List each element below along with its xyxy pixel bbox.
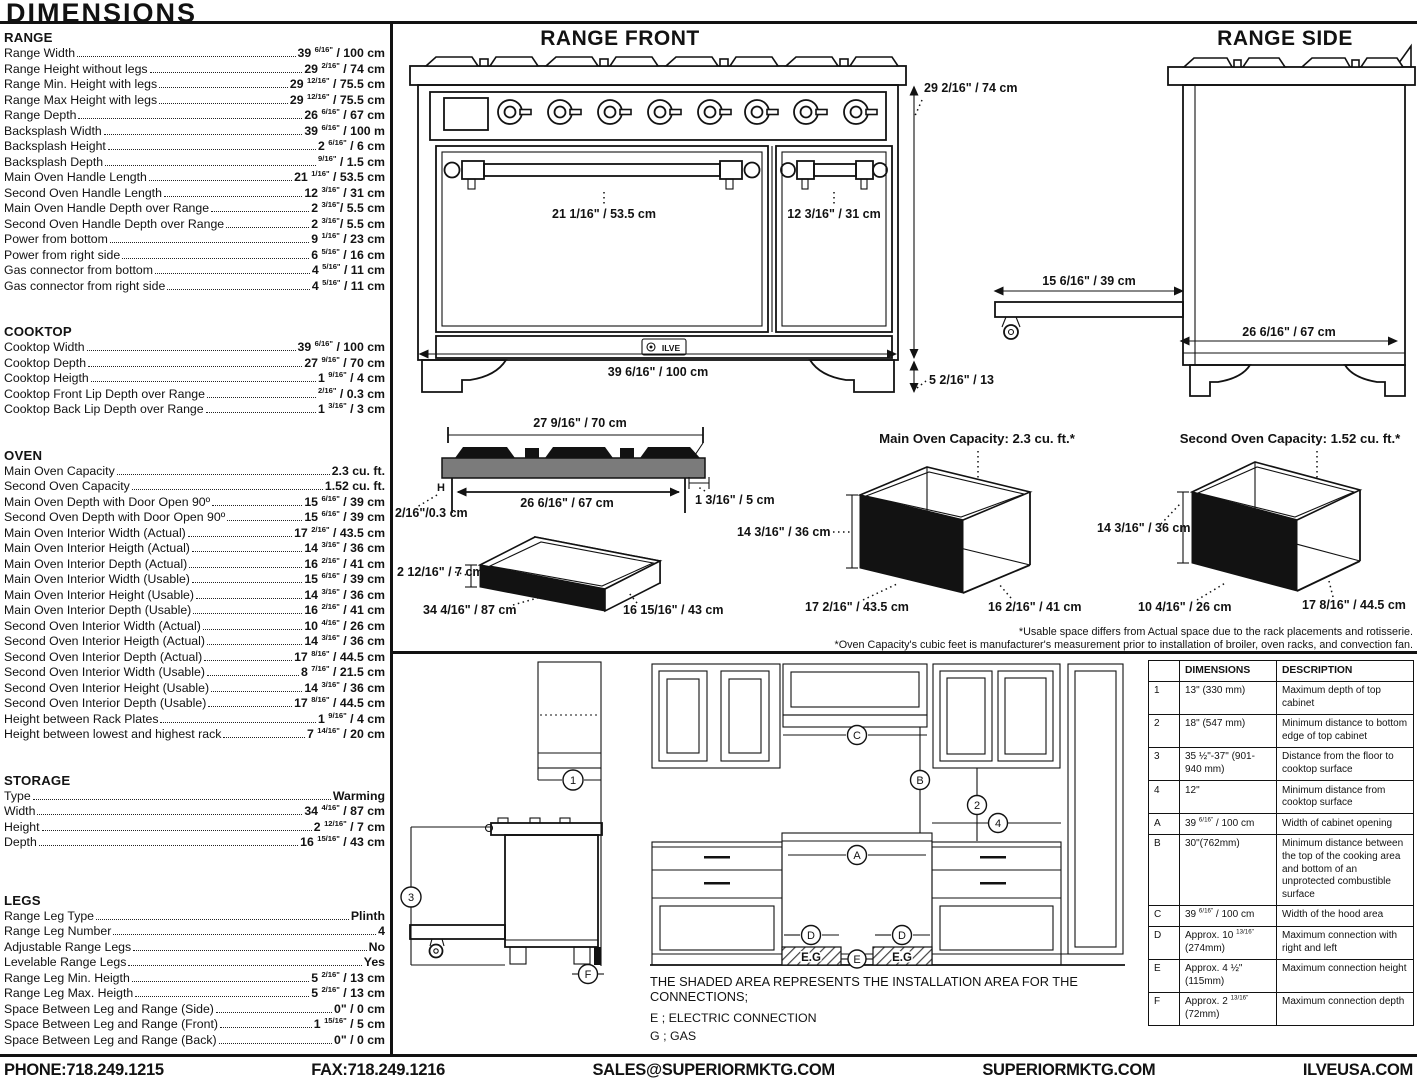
main-oven-width-dim: 17 2/16" / 43.5 cm xyxy=(805,600,909,614)
spec-section-storage: STORAGETypeWarmingWidth34 4/16" / 87 cmH… xyxy=(4,773,385,851)
base-right-cabinet xyxy=(932,842,1061,965)
spec-row: Range Leg Min. Heigth5 2/16" / 13 cm xyxy=(4,971,385,987)
footer-website2: ILVEUSA.COM xyxy=(1303,1061,1413,1080)
spec-row: Range Min. Height with legs29 12/16" / 7… xyxy=(4,77,385,93)
spec-value: Yes xyxy=(364,955,385,971)
shaded-label: E.G xyxy=(801,952,821,964)
spec-row: Main Oven Capacity2.3 cu. ft. xyxy=(4,464,385,480)
cooktop-side xyxy=(491,823,602,835)
spec-label: Second Oven Depth with Door Open 90º xyxy=(4,510,225,526)
spec-row: Backsplash Depth9/16" / 1.5 cm xyxy=(4,155,385,171)
spec-row: Range Leg Number4 xyxy=(4,924,385,940)
spec-value: 15 6/16" / 39 cm xyxy=(304,495,385,511)
marker-F: F xyxy=(579,965,598,984)
spec-label: Power from right side xyxy=(4,248,120,264)
spec-row: Range Depth26 6/16" / 67 cm xyxy=(4,108,385,124)
spec-value: Plinth xyxy=(351,909,385,925)
spec-value: 17 8/16" / 44.5 cm xyxy=(294,696,385,712)
dotted-leader xyxy=(192,551,302,552)
base-left-cabinet xyxy=(652,842,782,965)
table-dim: Approx. 2 13/16" (72mm) xyxy=(1180,992,1277,1025)
spec-label: Space Between Leg and Range (Side) xyxy=(4,1002,214,1018)
dotted-leader xyxy=(39,845,298,846)
right-leg xyxy=(810,360,894,392)
knob-icon xyxy=(698,100,731,124)
spec-value: 4 5/16" / 11 cm xyxy=(312,263,385,279)
dotted-leader xyxy=(196,598,302,599)
dotted-leader xyxy=(189,567,302,568)
spec-section-heading: RANGE xyxy=(4,30,385,46)
upper-right-cabinet xyxy=(933,664,1060,768)
install-table-row: FApprox. 2 13/16" (72mm)Maximum connecti… xyxy=(1149,992,1414,1025)
spec-label: Main Oven Capacity xyxy=(4,464,115,480)
table-dim: 39 6/16" / 100 cm xyxy=(1180,905,1277,926)
table-desc: Maximum connection with right and left xyxy=(1277,926,1414,959)
second-oven-diagram: Second Oven Capacity: 1.52 cu. ft.* 14 3… xyxy=(1095,428,1417,620)
spec-label: Second Oven Handle Depth over Range xyxy=(4,217,224,233)
range-width-dim: 39 6/16" / 100 cm xyxy=(608,365,708,379)
marker-B: B xyxy=(911,771,930,790)
cooktop-band xyxy=(410,57,906,85)
spec-value: 1 3/16" / 3 cm xyxy=(318,402,385,418)
table-desc: Maximum depth of top cabinet xyxy=(1277,681,1414,714)
dotted-leader xyxy=(207,644,302,645)
spec-section-heading: STORAGE xyxy=(4,773,385,789)
spec-value: 17 2/16" / 43.5 cm xyxy=(294,526,385,542)
spec-row: Width34 4/16" / 87 cm xyxy=(4,804,385,820)
table-key: 1 xyxy=(1149,681,1180,714)
spec-row: Space Between Leg and Range (Side)0" / 0… xyxy=(4,1002,385,1018)
install-table-body: 113" (330 mm)Maximum depth of top cabine… xyxy=(1149,681,1414,1025)
spec-row: Height2 12/16" / 7 cm xyxy=(4,820,385,836)
spec-label: Range Leg Max. Heigth xyxy=(4,986,133,1002)
spec-row: Second Oven Capacity1.52 cu. ft. xyxy=(4,479,385,495)
drawer-height-dim: 2 12/16" / 7 cm xyxy=(397,565,484,579)
spec-section-legs: LEGSRange Leg TypePlinthRange Leg Number… xyxy=(4,893,385,1049)
dotted-leader xyxy=(204,660,292,661)
marker-2: 2 xyxy=(968,796,987,815)
front-lip-dim: 2/16"/0.3 cm xyxy=(395,506,468,520)
cooktop-inner-dim: 26 6/16" / 67 cm xyxy=(520,496,614,510)
dotted-leader xyxy=(113,934,376,935)
spec-label: Range Depth xyxy=(4,108,76,124)
knob-icon xyxy=(794,100,827,124)
table-dim: Approx. 10 13/16" (274mm) xyxy=(1180,926,1277,959)
install-table-row: 412"Minimum distance from cooktop surfac… xyxy=(1149,781,1414,814)
range-front-diagram: 21 1/16" / 53.5 cm 12 3/16" / 31 cm ILVE… xyxy=(408,52,1018,404)
spec-value: 9/16" / 1.5 cm xyxy=(318,155,385,171)
spec-label: Range Min. Height with legs xyxy=(4,77,157,93)
caster-icon xyxy=(430,945,443,958)
main-oven-title: Main Oven Capacity: 2.3 cu. ft.* xyxy=(879,431,1076,446)
spec-row: Power from bottom9 1/16" / 23 cm xyxy=(4,232,385,248)
spec-row: Range Height without legs29 2/16" / 74 c… xyxy=(4,62,385,78)
install-note-gas: G ; GAS xyxy=(650,1029,1130,1043)
spec-value: 17 8/16" / 44.5 cm xyxy=(294,650,385,666)
spec-value: 6 5/16" / 16 cm xyxy=(311,248,385,264)
spec-value: 1 9/16" / 4 cm xyxy=(318,712,385,728)
spec-value: 26 6/16" / 67 cm xyxy=(304,108,385,124)
footer: PHONE:718.249.1215 FAX:718.249.1216 SALE… xyxy=(0,1054,1417,1080)
second-oven-depth-dim: 17 8/16" / 44.5 cm xyxy=(1302,598,1406,612)
second-oven-title: Second Oven Capacity: 1.52 cu. ft.* xyxy=(1180,431,1401,446)
table-header-description: DESCRIPTION xyxy=(1277,661,1414,682)
spec-label: Range Leg Number xyxy=(4,924,111,940)
main-oven-depth-dim: 16 2/16" / 41 cm xyxy=(988,600,1082,614)
svg-text:A: A xyxy=(853,850,861,862)
dotted-leader xyxy=(164,196,302,197)
spec-value: No xyxy=(369,940,385,956)
install-table-row: 335 ½"-37" (901-940 mm)Distance from the… xyxy=(1149,747,1414,780)
table-dim: 35 ½"-37" (901-940 mm) xyxy=(1180,747,1277,780)
range-body xyxy=(418,85,898,360)
spec-value: 12 3/16" / 31 cm xyxy=(304,186,385,202)
install-table-row: 218" (547 mm)Minimum distance to bottom … xyxy=(1149,714,1414,747)
spec-label: Second Oven Handle Length xyxy=(4,186,162,202)
spec-row: Second Oven Handle Depth over Range2 3/1… xyxy=(4,217,385,233)
spec-label: Main Oven Depth with Door Open 90º xyxy=(4,495,210,511)
range-profile-body xyxy=(505,835,598,947)
svg-text:1: 1 xyxy=(570,775,576,787)
marker-C: C xyxy=(848,726,867,745)
spec-row: Levelable Range LegsYes xyxy=(4,955,385,971)
spec-label: Depth xyxy=(4,835,37,851)
spec-label: Main Oven Handle Depth over Range xyxy=(4,201,209,217)
table-desc: Minimum distance between the top of the … xyxy=(1277,834,1414,905)
install-notes: THE SHADED AREA REPRESENTS THE INSTALLAT… xyxy=(650,974,1130,1047)
spec-value: 2/16" / 0.3 cm xyxy=(318,387,385,403)
spec-section-heading: OVEN xyxy=(4,448,385,464)
spec-row: Range Leg Max. Heigth5 2/16" / 13 cm xyxy=(4,986,385,1002)
spec-row: Cooktop Heigth1 9/16" / 4 cm xyxy=(4,371,385,387)
spec-row: Adjustable Range LegsNo xyxy=(4,940,385,956)
spec-row: Backsplash Height2 6/16" / 6 cm xyxy=(4,139,385,155)
spec-value: 0" / 0 cm xyxy=(334,1033,385,1049)
table-key: 4 xyxy=(1149,781,1180,814)
dotted-leader xyxy=(105,165,316,166)
spec-value: 5 2/16" / 13 cm xyxy=(311,971,385,987)
range-front-title: RANGE FRONT xyxy=(400,27,840,51)
dotted-leader xyxy=(122,258,309,259)
page-title: DIMENSIONS xyxy=(6,0,197,29)
knob-icon xyxy=(548,100,581,124)
open-door-side xyxy=(410,925,505,939)
spec-value: 1 15/16" / 5 cm xyxy=(314,1017,385,1033)
table-dim: Approx. 4 ½" (115mm) xyxy=(1180,959,1277,992)
second-oven-width-dim: 10 4/16" / 26 cm xyxy=(1138,600,1232,614)
footer-fax: FAX:718.249.1216 xyxy=(311,1061,445,1080)
connection-zone xyxy=(594,947,601,965)
spec-sections: RANGERange Width39 6/16" / 100 cmRange H… xyxy=(4,30,385,1078)
footnotes: *Usable space differs from Actual space … xyxy=(700,626,1413,652)
spec-row: Range Leg TypePlinth xyxy=(4,909,385,925)
spec-row: Space Between Leg and Range (Front)1 15/… xyxy=(4,1017,385,1033)
spec-value: 15 6/16" / 39 cm xyxy=(304,572,385,588)
spec-section-cooktop: COOKTOPCooktop Width39 6/16" / 100 cmCoo… xyxy=(4,324,385,418)
spec-value: 14 3/16" / 36 cm xyxy=(304,588,385,604)
install-note-electric: E ; ELECTRIC CONNECTION xyxy=(650,1011,1130,1025)
table-desc: Distance from the floor to cooktop surfa… xyxy=(1277,747,1414,780)
dotted-leader xyxy=(77,56,295,57)
table-key: A xyxy=(1149,814,1180,835)
main-oven-door xyxy=(436,146,768,332)
spec-label: Second Oven Interior Width (Usable) xyxy=(4,665,205,681)
spec-value: 14 3/16" / 36 cm xyxy=(304,541,385,557)
spec-label: Main Oven Interior Width (Usable) xyxy=(4,572,190,588)
vertical-divider xyxy=(390,21,393,1055)
footer-email: SALES@SUPERIORMKTG.COM xyxy=(592,1061,834,1080)
spec-section-range: RANGERange Width39 6/16" / 100 cmRange H… xyxy=(4,30,385,294)
spec-row: Second Oven Interior Heigth (Actual)14 3… xyxy=(4,634,385,650)
spec-label: Height between Rack Plates xyxy=(4,712,158,728)
h-marker: H xyxy=(437,482,445,494)
install-table-row: A39 6/16" / 100 cmWidth of cabinet openi… xyxy=(1149,814,1414,835)
svg-text:2: 2 xyxy=(974,800,980,812)
dotted-leader xyxy=(110,242,309,243)
dotted-leader xyxy=(37,814,302,815)
spec-value: 21 1/16" / 53.5 cm xyxy=(294,170,385,186)
spec-label: Second Oven Interior Depth (Usable) xyxy=(4,696,206,712)
storage-drawer-diagram: 2 12/16" / 7 cm 34 4/16" / 87 cm 16 15/1… xyxy=(395,525,775,630)
spec-row: Second Oven Interior Depth (Usable)17 8/… xyxy=(4,696,385,712)
spec-label: Cooktop Width xyxy=(4,340,85,356)
dotted-leader xyxy=(132,489,323,490)
dotted-leader xyxy=(220,1027,312,1028)
table-header-blank xyxy=(1149,661,1180,682)
dotted-leader xyxy=(87,350,296,351)
spec-row: Range Max Height with legs29 12/16" / 75… xyxy=(4,93,385,109)
depth-dim: 26 6/16" / 67 cm xyxy=(1242,325,1336,339)
spec-label: Cooktop Heigth xyxy=(4,371,89,387)
knob-icon xyxy=(598,100,631,124)
spec-value: 16 15/16" / 43 cm xyxy=(300,835,385,851)
spec-label: Main Oven Interior Depth (Usable) xyxy=(4,603,191,619)
footnote-line: *Oven Capacity's cubic feet is manufactu… xyxy=(700,639,1413,652)
spec-label: Backsplash Width xyxy=(4,124,102,140)
spec-row: Main Oven Handle Length21 1/16" / 53.5 c… xyxy=(4,170,385,186)
dotted-leader xyxy=(192,582,302,583)
dotted-leader xyxy=(78,118,302,119)
spec-row: Main Oven Interior Width (Actual)17 2/16… xyxy=(4,526,385,542)
spec-row: Cooktop Width39 6/16" / 100 cm xyxy=(4,340,385,356)
knob-icon xyxy=(745,100,778,124)
spec-value: 16 2/16" / 41 cm xyxy=(304,603,385,619)
spec-value: 7 14/16" / 20 cm xyxy=(307,727,385,743)
left-leg xyxy=(422,360,506,392)
knob-icon xyxy=(844,100,877,124)
marker-E: E xyxy=(848,950,866,968)
knob-icon xyxy=(648,100,681,124)
spec-label: Range Max Height with legs xyxy=(4,93,157,109)
install-table-row: EApprox. 4 ½" (115mm)Maximum connection … xyxy=(1149,959,1414,992)
spec-row: Second Oven Handle Length12 3/16" / 31 c… xyxy=(4,186,385,202)
range-side-diagram: 15 6/16" / 39 cm 26 6/16" / 67 cm xyxy=(950,40,1417,408)
control-panel xyxy=(430,92,886,140)
svg-text:C: C xyxy=(853,730,861,742)
spec-row: Height between Rack Plates1 9/16" / 4 cm xyxy=(4,712,385,728)
footnote-line: *Usable space differs from Actual space … xyxy=(700,626,1413,639)
install-table-row: 113" (330 mm)Maximum depth of top cabine… xyxy=(1149,681,1414,714)
table-header-dimensions: DIMENSIONS xyxy=(1180,661,1277,682)
dotted-leader xyxy=(211,211,309,212)
spec-row: Main Oven Depth with Door Open 90º15 6/1… xyxy=(4,495,385,511)
spec-label: Backsplash Depth xyxy=(4,155,103,171)
spec-row: Main Oven Interior Width (Usable)15 6/16… xyxy=(4,572,385,588)
dotted-leader xyxy=(193,613,302,614)
dotted-leader xyxy=(150,72,303,73)
spec-label: Type xyxy=(4,789,31,805)
spec-value: 29 12/16" / 75.5 cm xyxy=(290,93,385,109)
spec-value: 1.52 cu. ft. xyxy=(325,479,385,495)
spec-label: Adjustable Range Legs xyxy=(4,940,131,956)
spec-row: Second Oven Interior Width (Actual)10 4/… xyxy=(4,619,385,635)
spec-label: Range Width xyxy=(4,46,75,62)
spec-label: Gas connector from right side xyxy=(4,279,165,295)
install-note-main: THE SHADED AREA REPRESENTS THE INSTALLAT… xyxy=(650,974,1130,1004)
dotted-leader xyxy=(203,629,303,630)
second-oven-height-dim: 14 3/16" / 36 cm xyxy=(1097,521,1191,535)
dotted-leader xyxy=(188,536,292,537)
install-table-row: DApprox. 10 13/16" (274mm)Maximum connec… xyxy=(1149,926,1414,959)
spec-value: Warming xyxy=(333,789,385,805)
dotted-leader xyxy=(149,180,292,181)
spec-row: Main Oven Interior Height (Usable)14 3/1… xyxy=(4,588,385,604)
svg-text:F: F xyxy=(585,969,592,981)
dotted-leader xyxy=(167,289,310,290)
second-handle-dim: 12 3/16" / 31 cm xyxy=(787,207,881,221)
storage-drawer-front: ILVE xyxy=(436,336,892,358)
table-desc: Maximum connection depth xyxy=(1277,992,1414,1025)
spec-row: Main Oven Interior Depth (Usable)16 2/16… xyxy=(4,603,385,619)
spec-row: Height between lowest and highest rack7 … xyxy=(4,727,385,743)
spec-section-oven: OVENMain Oven Capacity2.3 cu. ft.Second … xyxy=(4,448,385,743)
marker-1: 1 xyxy=(563,770,583,790)
cooktop-slab xyxy=(442,458,705,478)
spec-row: Gas connector from right side4 5/16" / 1… xyxy=(4,279,385,295)
dotted-leader xyxy=(96,919,349,920)
spec-label: Cooktop Back Lip Depth over Range xyxy=(4,402,204,418)
side-left-leg xyxy=(1190,365,1250,396)
spec-label: Cooktop Front Lip Depth over Range xyxy=(4,387,205,403)
main-oven-diagram: Main Oven Capacity: 2.3 cu. ft.* 14 3/16… xyxy=(735,428,1125,620)
table-dim: 30"(762mm) xyxy=(1180,834,1277,905)
spec-row: Second Oven Depth with Door Open 90º15 6… xyxy=(4,510,385,526)
dotted-leader xyxy=(135,996,309,997)
dotted-leader xyxy=(42,830,312,831)
table-dim: 13" (330 mm) xyxy=(1180,681,1277,714)
dotted-leader xyxy=(133,950,366,951)
spec-value: 29 2/16" / 74 cm xyxy=(304,62,385,78)
dotted-leader xyxy=(227,520,302,521)
spec-label: Range Height without legs xyxy=(4,62,148,78)
second-oven-door xyxy=(776,146,892,332)
dotted-leader xyxy=(33,799,331,800)
cooktop-band-side xyxy=(1168,67,1415,85)
spec-label: Second Oven Interior Heigth (Actual) xyxy=(4,634,205,650)
dotted-leader xyxy=(108,149,316,150)
spec-row: Depth16 15/16" / 43 cm xyxy=(4,835,385,851)
shaded-label: E.G xyxy=(892,952,912,964)
spec-label: Height xyxy=(4,820,40,836)
spec-label: Second Oven Capacity xyxy=(4,479,130,495)
dotted-leader xyxy=(104,134,303,135)
spec-label: Second Oven Interior Depth (Actual) xyxy=(4,650,202,666)
spec-row: Main Oven Handle Depth over Range2 3/16"… xyxy=(4,201,385,217)
spec-row: Cooktop Depth27 9/16" / 70 cm xyxy=(4,356,385,372)
dotted-leader xyxy=(207,397,316,398)
door-open-dim: 15 6/16" / 39 cm xyxy=(1042,274,1136,288)
marker-3: 3 xyxy=(401,887,421,907)
main-oven-height-dim: 14 3/16" / 36 cm xyxy=(737,525,831,539)
spec-label: Second Oven Interior Width (Actual) xyxy=(4,619,201,635)
header-rule xyxy=(0,21,1417,24)
spec-label: Width xyxy=(4,804,35,820)
spec-row: Cooktop Back Lip Depth over Range1 3/16"… xyxy=(4,402,385,418)
spec-section-heading: COOKTOP xyxy=(4,324,385,340)
marker-A: A xyxy=(848,846,867,865)
upper-left-cabinet xyxy=(652,664,780,768)
table-header-row: DIMENSIONS DESCRIPTION xyxy=(1149,661,1414,682)
side-right-leg xyxy=(1345,365,1405,396)
dotted-leader xyxy=(226,227,309,228)
table-key: E xyxy=(1149,959,1180,992)
spec-value: 5 2/16" / 13 cm xyxy=(311,986,385,1002)
spec-label: Gas connector from bottom xyxy=(4,263,153,279)
spec-value: 2.3 cu. ft. xyxy=(332,464,385,480)
table-dim: 39 6/16" / 100 cm xyxy=(1180,814,1277,835)
spec-value: 39 6/16" / 100 cm xyxy=(298,340,386,356)
footer-website: SUPERIORMKTG.COM xyxy=(982,1061,1155,1080)
spec-value: 14 3/16" / 36 cm xyxy=(304,634,385,650)
tall-cabinet xyxy=(1068,664,1123,954)
dotted-leader xyxy=(211,691,302,692)
drawer-width-dim: 34 4/16" / 87 cm xyxy=(423,603,517,617)
marker-D: D xyxy=(802,926,821,945)
marker-4: 4 xyxy=(989,814,1008,833)
spec-value: 4 xyxy=(378,924,385,940)
spec-row: Power from right side6 5/16" / 16 cm xyxy=(4,248,385,264)
spec-row: Second Oven Interior Width (Usable)8 7/1… xyxy=(4,665,385,681)
spec-value: 4 5/16" / 11 cm xyxy=(312,279,385,295)
spec-label: Main Oven Interior Width (Actual) xyxy=(4,526,186,542)
spec-row: Gas connector from bottom4 5/16" / 11 cm xyxy=(4,263,385,279)
spec-value: 1 9/16" / 4 cm xyxy=(318,371,385,387)
display xyxy=(444,98,488,130)
spec-row: Backsplash Width39 6/16" / 100 m xyxy=(4,124,385,140)
dotted-leader xyxy=(223,737,305,738)
table-desc: Minimum distance to bottom edge of top c… xyxy=(1277,714,1414,747)
install-side-diagram: 1 3 F xyxy=(400,658,650,1008)
dotted-leader xyxy=(128,965,361,966)
spec-value: 15 6/16" / 39 cm xyxy=(304,510,385,526)
knob-icon xyxy=(498,100,531,124)
spec-label: Levelable Range Legs xyxy=(4,955,126,971)
spec-value: 9 1/16" / 23 cm xyxy=(311,232,385,248)
svg-text:3: 3 xyxy=(408,892,414,904)
spec-row: Second Oven Interior Depth (Actual)17 8/… xyxy=(4,650,385,666)
spec-row: Space Between Leg and Range (Back)0" / 0… xyxy=(4,1033,385,1049)
table-desc: Width of cabinet opening xyxy=(1277,814,1414,835)
spec-row: Range Width39 6/16" / 100 cm xyxy=(4,46,385,62)
svg-text:D: D xyxy=(807,930,815,942)
table-dim: 12" xyxy=(1180,781,1277,814)
svg-text:E: E xyxy=(853,954,860,966)
main-handle-dim: 21 1/16" / 53.5 cm xyxy=(552,207,656,221)
table-dim: 18" (547 mm) xyxy=(1180,714,1277,747)
hood-cabinet xyxy=(783,664,927,727)
install-dimensions-table: DIMENSIONS DESCRIPTION 113" (330 mm)Maxi… xyxy=(1148,660,1414,1026)
spec-value: 16 2/16" / 41 cm xyxy=(304,557,385,573)
